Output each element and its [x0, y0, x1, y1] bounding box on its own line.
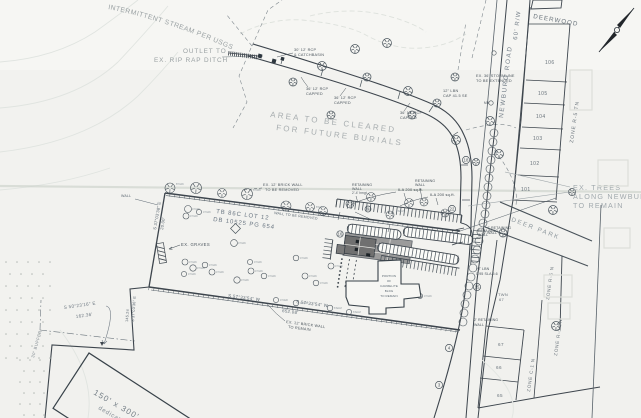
- svg-text:65: 65: [497, 393, 503, 398]
- svg-text:4"OAK: 4"OAK: [255, 269, 263, 273]
- svg-text:15: 15: [475, 285, 480, 290]
- svg-text:TO BE REMOVED: TO BE REMOVED: [265, 188, 299, 192]
- svg-text:67: 67: [498, 342, 504, 347]
- svg-text:4"OAK: 4"OAK: [424, 294, 432, 298]
- svg-text:4"OAK: 4"OAK: [203, 210, 211, 214]
- svg-text:4"OAK: 4"OAK: [216, 270, 224, 274]
- svg-text:6"ELM: 6"ELM: [353, 310, 361, 314]
- svg-text:PORTION: PORTION: [382, 274, 396, 278]
- svg-text:22: 22: [450, 207, 455, 212]
- svg-text:102: 102: [530, 161, 540, 167]
- svg-text:30' 12' RCP: 30' 12' RCP: [294, 48, 316, 52]
- svg-text:WALL: WALL: [121, 194, 131, 198]
- svg-text:EX. GRAVES: EX. GRAVES: [181, 242, 210, 247]
- svg-text:BLDG: BLDG: [385, 289, 394, 293]
- svg-text:66: 66: [496, 365, 502, 370]
- svg-text:36' 12' RCP: 36' 12' RCP: [306, 87, 328, 91]
- svg-text:4"OAK: 4"OAK: [190, 214, 198, 218]
- svg-text:CAPPED: CAPPED: [334, 101, 351, 105]
- svg-text:6"ELM: 6"ELM: [334, 306, 342, 310]
- svg-text:OUTLET TO: OUTLET TO: [183, 48, 227, 55]
- svg-text:0.95 SLA 5.6: 0.95 SLA 5.6: [476, 272, 498, 276]
- svg-text:4"OAK: 4"OAK: [268, 274, 276, 278]
- svg-text:WALL: WALL: [478, 233, 488, 237]
- svg-text:TO REMAIN: TO REMAIN: [380, 294, 398, 298]
- svg-text:OF: OF: [387, 279, 391, 283]
- svg-text:4"OAK: 4"OAK: [197, 266, 205, 270]
- svg-text:36' 12' RCP: 36' 12' RCP: [400, 111, 422, 115]
- svg-text:106: 106: [545, 60, 555, 66]
- svg-text:4"OAK: 4"OAK: [300, 256, 308, 260]
- svg-text:WALL: WALL: [415, 183, 425, 187]
- svg-text:4"OAK: 4"OAK: [320, 281, 328, 285]
- svg-text:CAP 41.5 SE: CAP 41.5 SE: [443, 94, 468, 98]
- svg-text:HT LBN: HT LBN: [476, 267, 490, 271]
- svg-text:ALONG NEWBURG: ALONG NEWBURG: [573, 192, 641, 201]
- svg-text:36' 12' RCP: 36' 12' RCP: [334, 96, 356, 100]
- svg-text:8"HCK: 8"HCK: [316, 205, 324, 209]
- svg-text:EX. RIP RAP DITCH: EX. RIP RAP DITCH: [154, 57, 228, 64]
- svg-text:4"OAK: 4"OAK: [192, 207, 200, 211]
- svg-text:4"CED: 4"CED: [280, 298, 288, 302]
- svg-text:2' RETAINING: 2' RETAINING: [474, 318, 498, 322]
- svg-text:EX. 12' BRICK WALL: EX. 12' BRICK WALL: [263, 183, 303, 187]
- svg-text:104: 104: [536, 114, 546, 120]
- svg-text:& CATCHBASIN: & CATCHBASIN: [294, 53, 324, 57]
- svg-text:4"OAK: 4"OAK: [238, 241, 246, 245]
- svg-text:WALL: WALL: [474, 323, 484, 327]
- svg-text:ILA 200 sq.ft.: ILA 200 sq.ft.: [430, 193, 455, 197]
- svg-text:4"OAK: 4"OAK: [188, 272, 196, 276]
- svg-text:12" LBN: 12" LBN: [443, 89, 458, 93]
- svg-text:8"OAK: 8"OAK: [176, 182, 184, 186]
- svg-text:4"OAK: 4"OAK: [335, 264, 343, 268]
- svg-text:67: 67: [499, 297, 505, 302]
- svg-text:18: 18: [464, 158, 469, 163]
- svg-text:103: 103: [533, 136, 543, 142]
- svg-text:4"OAK: 4"OAK: [309, 274, 317, 278]
- svg-text:101: 101: [521, 187, 531, 193]
- svg-text:4"CED: 4"CED: [300, 301, 308, 305]
- svg-text:CAPPED: CAPPED: [306, 92, 323, 96]
- svg-text:4"OAK: 4"OAK: [209, 263, 217, 267]
- svg-text:CARMELITE: CARMELITE: [380, 284, 398, 288]
- svg-text:105: 105: [538, 91, 548, 97]
- svg-text:MB: MB: [484, 101, 489, 105]
- svg-text:6"OAK: 6"OAK: [253, 188, 261, 192]
- svg-text:ILA 200 sq.ft.: ILA 200 sq.ft.: [398, 188, 423, 192]
- svg-text:4"OAK: 4"OAK: [241, 278, 249, 282]
- svg-text:2'-4' hmgt: 2'-4' hmgt: [352, 191, 367, 195]
- svg-text:4"OAK: 4"OAK: [254, 260, 262, 264]
- svg-text:16: 16: [338, 232, 343, 237]
- svg-text:TO REMAIN: TO REMAIN: [573, 201, 624, 210]
- svg-text:6"ELM: 6"ELM: [396, 209, 404, 213]
- svg-text:4"OAK: 4"OAK: [189, 260, 197, 264]
- svg-text:EX. TREES: EX. TREES: [573, 183, 621, 192]
